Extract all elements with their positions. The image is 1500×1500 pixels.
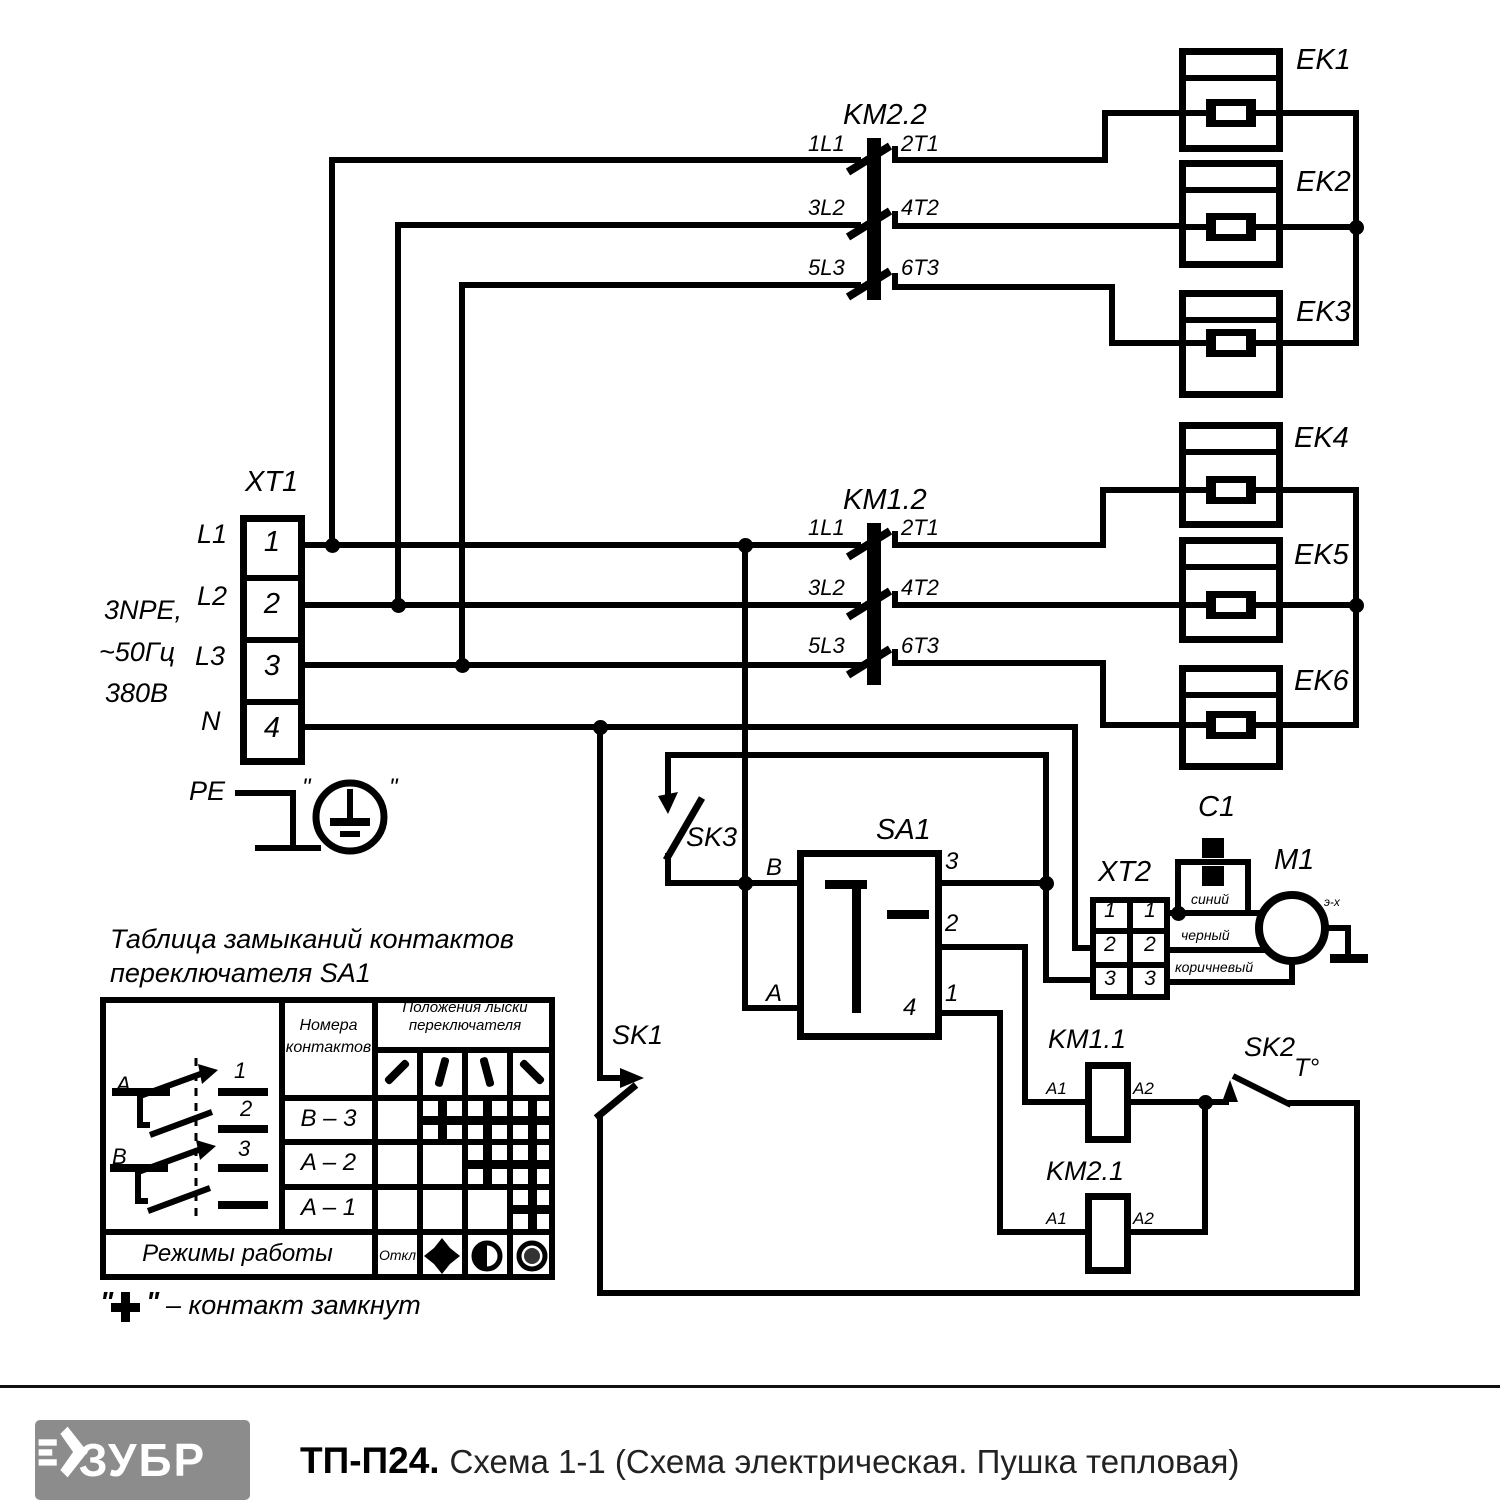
- km22-term-2t1: 2T1: [901, 133, 939, 155]
- wire-segment: [290, 790, 296, 851]
- sa1-term-4: 4: [903, 996, 916, 1020]
- wire-segment: [459, 282, 465, 668]
- model-number: ТП-П24.: [300, 1440, 440, 1481]
- wire-segment: [1100, 487, 1182, 493]
- wire-segment: [665, 853, 671, 886]
- wire-segment: [1109, 340, 1182, 346]
- wire-segment: [1022, 944, 1028, 1105]
- heater-separator: [1185, 187, 1277, 193]
- km22-term-1l1: 1L1: [808, 133, 845, 155]
- contact-closed-mark: [512, 1205, 554, 1214]
- ek3-label: EK3: [1296, 298, 1351, 327]
- neutral-label: N: [201, 708, 221, 735]
- wire-segment: [395, 222, 401, 608]
- contact-closed-mark: [422, 1116, 464, 1125]
- wire-segment: [1345, 925, 1351, 959]
- contact-closed-mark: [512, 1116, 554, 1125]
- pictogram-contact-3: 3: [238, 1138, 250, 1160]
- brand-name: ЗУБР: [79, 1433, 206, 1487]
- xt1-terminal-4: 4: [252, 714, 292, 743]
- wire-segment: [459, 282, 861, 288]
- km22-term-4t2: 4T2: [901, 197, 939, 219]
- wire-segment: [997, 1229, 1088, 1235]
- xt2-cell-3r: 3: [1136, 968, 1164, 989]
- table-off-label: Откл: [375, 1248, 420, 1262]
- supply-spec-3: 380В: [105, 680, 168, 707]
- brand-logo-icon: [35, 1420, 93, 1484]
- table-line: [417, 1047, 423, 1277]
- wire-segment: [1127, 1229, 1208, 1235]
- phase-l3-label: L3: [195, 643, 225, 670]
- wire-segment: [892, 157, 1108, 163]
- km22-term-6t3: 6T3: [901, 257, 939, 279]
- heater-separator: [1185, 564, 1277, 570]
- xt1-label: XT1: [245, 468, 298, 497]
- table-line: [282, 1095, 552, 1101]
- km21-term-a2: A2: [1133, 1210, 1154, 1227]
- table-line: [282, 1184, 552, 1190]
- xt1-terminal-1: 1: [252, 528, 292, 557]
- table-line: [103, 1229, 552, 1235]
- wire-segment: [329, 157, 861, 163]
- wire-segment: [892, 284, 1115, 290]
- wire-segment: [1100, 722, 1182, 728]
- supply-spec-1: 3NPE,: [104, 597, 182, 624]
- xt1-divider: [243, 699, 302, 705]
- wire-segment: [1280, 224, 1359, 230]
- phase-l2-label: L2: [197, 583, 227, 610]
- km12-term-6t3: 6T3: [901, 635, 939, 657]
- wire-segment: [1278, 487, 1359, 493]
- wire-segment: [665, 752, 671, 803]
- wire-segment: [329, 157, 335, 548]
- table-header-contacts-1: Номера: [282, 1018, 375, 1034]
- footnote-quote-open: ": [100, 1288, 113, 1316]
- wire-segment: [1109, 284, 1115, 346]
- switch-sk2: [1222, 1076, 1291, 1105]
- wire-color-blue: синий: [1191, 892, 1229, 906]
- wire-segment: [1102, 110, 1182, 116]
- c1-label: C1: [1198, 793, 1235, 822]
- junction-dot: [325, 538, 340, 553]
- km12-term-4t2: 4T2: [901, 577, 939, 599]
- pictogram-contact-2: 2: [240, 1098, 252, 1120]
- drawing-subtitle: Схема 1-1 (Схема электрическая. Пушка те…: [450, 1443, 1240, 1480]
- wire-segment: [1100, 487, 1106, 548]
- sk2-temp-label: T°: [1294, 1056, 1319, 1081]
- wire-segment: [1278, 602, 1359, 608]
- junction-dot: [391, 598, 406, 613]
- xt2-label: XT2: [1098, 858, 1151, 887]
- selector-switch-sa1: [797, 850, 942, 1040]
- table-modes-label: Режимы работы: [100, 1242, 375, 1266]
- heater-resistor-core: [1216, 598, 1246, 612]
- wire-segment: [937, 1010, 1003, 1016]
- wire-segment: [997, 1010, 1003, 1235]
- wire-segment: [1245, 859, 1251, 916]
- wire-segment: [1202, 1099, 1208, 1235]
- wire-segment: [302, 542, 861, 548]
- pe-earth-icon: [316, 783, 384, 851]
- heater-separator: [1185, 449, 1277, 455]
- supply-spec-2: ~50Гц: [99, 639, 175, 666]
- heater-resistor-core: [1216, 220, 1246, 234]
- wire-segment: [1043, 752, 1049, 886]
- table-title-2: переключателя SA1: [110, 960, 371, 987]
- wire-segment: [1280, 110, 1359, 116]
- pictogram-contact-1: 1: [234, 1060, 246, 1082]
- table-title-1: Таблица замыканий контактов: [110, 926, 514, 953]
- xt1-divider: [243, 575, 302, 581]
- junction-dot: [1349, 598, 1364, 613]
- junction-dot: [455, 658, 470, 673]
- heater-resistor-core: [1216, 483, 1246, 497]
- km12-term-3l2: 3L2: [808, 577, 845, 599]
- wire-segment: [1043, 880, 1049, 983]
- brand-logo: ЗУБР: [35, 1420, 250, 1500]
- pictogram-pole-b: B: [112, 1146, 127, 1168]
- xt1-terminal-2: 2: [252, 590, 292, 619]
- sk3-label: SK3: [686, 824, 737, 851]
- wire-segment: [597, 724, 603, 1081]
- km12-label: KM1.2: [843, 486, 927, 515]
- junction-dot: [1171, 906, 1186, 921]
- pictogram-pole-a: A: [116, 1074, 131, 1096]
- wire-segment: [1100, 660, 1106, 728]
- xt2-cell-2l: 2: [1096, 934, 1124, 955]
- ek2-label: EK2: [1296, 168, 1351, 197]
- heater-resistor-core: [1216, 336, 1246, 350]
- wire-segment: [1288, 1100, 1360, 1106]
- ek1-label: EK1: [1296, 46, 1351, 75]
- sk2-label: SK2: [1244, 1034, 1295, 1061]
- wire-segment: [597, 1113, 603, 1296]
- wire-segment: [1102, 110, 1108, 163]
- table-header-contacts-2: контактов: [282, 1040, 375, 1056]
- wire-segment: [742, 542, 748, 1011]
- km12-term-2t1: 2T1: [901, 517, 939, 539]
- wire-segment: [1022, 1099, 1088, 1105]
- wire-segment: [1167, 979, 1295, 985]
- wire-segment: [1072, 724, 1078, 951]
- wire-segment: [1278, 722, 1359, 728]
- heater-resistor-core: [1216, 718, 1246, 732]
- km11-label: KM1.1: [1048, 1026, 1126, 1053]
- wire-segment: [1043, 977, 1093, 983]
- xt2-divider: [1127, 900, 1133, 997]
- wire-segment: [255, 845, 321, 851]
- wire-color-brown: коричневый: [1175, 960, 1253, 974]
- wire-segment: [1175, 859, 1251, 865]
- contactor-coil-km2-1: [1085, 1193, 1131, 1274]
- km21-term-a1: A1: [1046, 1210, 1067, 1227]
- wire-segment: [235, 790, 296, 796]
- wire-segment: [597, 1290, 1360, 1296]
- wire-segment: [1127, 1099, 1229, 1105]
- wire-segment: [597, 1075, 623, 1081]
- sa1-term-1: 1: [945, 982, 958, 1006]
- xt2-cell-1l: 1: [1096, 900, 1124, 921]
- earth-quote-right: ": [389, 776, 398, 800]
- m1-label: M1: [1274, 846, 1314, 875]
- km22-term-3l2: 3L2: [808, 197, 845, 219]
- km12-term-1l1: 1L1: [808, 517, 845, 539]
- junction-dot: [1198, 1095, 1213, 1110]
- sa1-term-a: A: [766, 982, 782, 1006]
- schematic-page: " " – контакт замкнут ЗУБР ТП-П24.Схема …: [0, 0, 1500, 1500]
- ek5-label: EK5: [1294, 541, 1349, 570]
- wire-segment: [892, 602, 1182, 608]
- junction-dot: [738, 538, 753, 553]
- wire-segment: [302, 724, 1078, 730]
- drawing-title: ТП-П24.Схема 1-1 (Схема электрическая. П…: [300, 1440, 1239, 1482]
- wire-segment: [665, 752, 1049, 758]
- xt1-terminal-3: 3: [252, 652, 292, 681]
- heater-separator: [1185, 692, 1277, 698]
- wire-segment: [1289, 957, 1295, 985]
- wire-segment: [892, 542, 1106, 548]
- wire-segment: [302, 662, 861, 668]
- wire-segment: [937, 880, 1049, 886]
- motor-m1: [1259, 895, 1368, 963]
- footnote-text: – контакт замкнут: [166, 1292, 421, 1319]
- contactor-coil-km1-1: [1085, 1062, 1131, 1143]
- xt2-cell-2r: 2: [1136, 934, 1164, 955]
- km12-term-5l3: 5L3: [808, 635, 845, 657]
- sa1-label: SA1: [876, 816, 931, 845]
- wire-segment: [892, 223, 1182, 229]
- table-line: [282, 1139, 552, 1145]
- wire-segment: [1354, 1100, 1360, 1296]
- ek4-label: EK4: [1294, 424, 1349, 453]
- phase-l1-label: L1: [197, 521, 227, 548]
- table-line: [375, 1047, 552, 1053]
- contact-closed-mark: [512, 1160, 554, 1169]
- wire-segment: [1072, 945, 1093, 951]
- table-row-contact-pair: A – 2: [282, 1151, 375, 1175]
- motor-ground-label: э-х: [1324, 896, 1340, 908]
- footnote-plus-icon: [111, 1292, 140, 1322]
- heater-ek5: [1179, 537, 1283, 643]
- footnote-quote-close: ": [146, 1288, 159, 1316]
- table-row-contact-pair: B – 3: [282, 1107, 375, 1131]
- contact-closed-mark: [467, 1160, 509, 1169]
- km21-label: KM2.1: [1046, 1158, 1124, 1185]
- wire-segment: [395, 222, 861, 228]
- contact-closed-mark: [467, 1116, 509, 1125]
- sa1-term-3: 3: [945, 850, 958, 874]
- table-header-positions-2: переключателя: [375, 1018, 555, 1033]
- wire-segment: [937, 944, 1028, 950]
- table-header-positions-1: Положения лыски: [375, 1000, 555, 1015]
- wire-segment: [302, 602, 861, 608]
- junction-dot: [1349, 220, 1364, 235]
- footer-divider: [0, 1385, 1500, 1388]
- heater-separator: [1185, 317, 1277, 323]
- sa1-term-2: 2: [945, 912, 958, 936]
- pe-label: PE: [189, 778, 225, 805]
- sk1-label: SK1: [612, 1022, 663, 1049]
- km11-term-a1: A1: [1046, 1080, 1067, 1097]
- xt1-divider: [243, 637, 302, 643]
- xt2-cell-1r: 1: [1136, 900, 1164, 921]
- junction-dot: [593, 720, 608, 735]
- heater-resistor-core: [1216, 106, 1246, 120]
- heater-separator: [1185, 75, 1277, 81]
- ek6-label: EK6: [1294, 667, 1349, 696]
- wire-color-black: черный: [1181, 928, 1230, 942]
- wire-segment: [1280, 340, 1359, 346]
- wire-segment: [1167, 947, 1265, 953]
- junction-dot: [1039, 876, 1054, 891]
- wire-segment: [892, 660, 1106, 666]
- xt2-cell-3l: 3: [1096, 968, 1124, 989]
- km22-label: KM2.2: [843, 101, 927, 130]
- earth-quote-left: ": [302, 776, 311, 800]
- km22-term-5l3: 5L3: [808, 257, 845, 279]
- heater-ek4: [1179, 422, 1283, 528]
- km11-term-a2: A2: [1133, 1080, 1154, 1097]
- table-row-contact-pair: A – 1: [282, 1196, 375, 1220]
- junction-dot: [738, 876, 753, 891]
- sa1-term-b: B: [766, 856, 782, 880]
